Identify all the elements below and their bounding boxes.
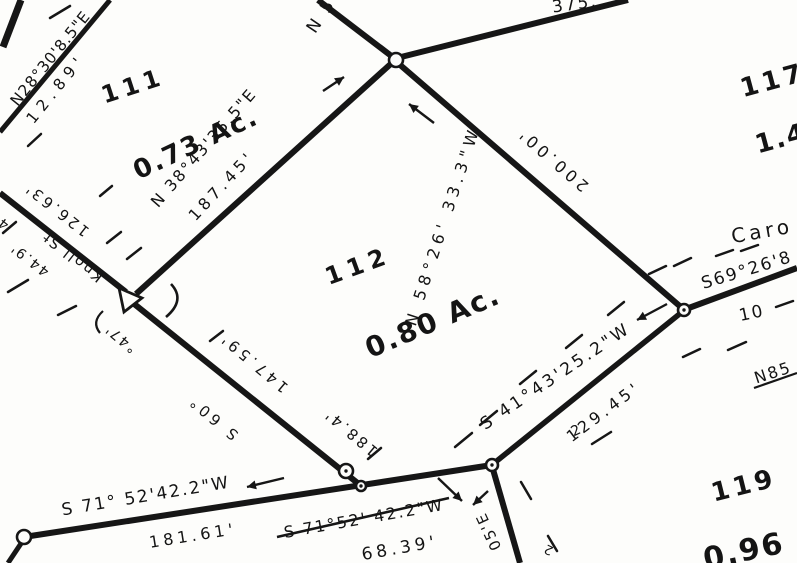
- curve-tick-right: [166, 284, 177, 317]
- tie-dash: [127, 248, 141, 259]
- corner-node-dot: [344, 469, 347, 472]
- corner-node: [389, 53, 403, 67]
- tie-dash: [608, 302, 624, 315]
- tie-dash: [521, 482, 531, 499]
- tie-dash: [107, 232, 121, 243]
- tie-dash: [100, 186, 112, 196]
- curve-tick-left: [96, 311, 103, 333]
- corner-node: [17, 530, 31, 544]
- tie-dash: [728, 342, 746, 350]
- tie-dash: [455, 433, 472, 447]
- tie-dash: [58, 306, 76, 315]
- tie-dash: [592, 432, 611, 444]
- tie-dash: [716, 250, 733, 256]
- arrow-s71-sw-head: [247, 481, 257, 490]
- tie-dash: [28, 134, 41, 146]
- tie-dash: [649, 266, 666, 274]
- tie-dash: [683, 349, 700, 357]
- lotline-corner-stub: [3, 0, 21, 47]
- tie-dash: [566, 335, 582, 348]
- tie-dash: [8, 280, 28, 292]
- lotline-200: [399, 64, 682, 308]
- corner-node-dot: [490, 463, 493, 466]
- tie-dash: [776, 301, 793, 307]
- corner-node-dot: [359, 484, 362, 487]
- corner-node-dot: [682, 308, 685, 311]
- lotline-147: [133, 303, 360, 485]
- tie-dash: [50, 6, 70, 18]
- plat-map: N28°30'8.5"E12.89'1110.73 Ac.N 38°43'35.…: [0, 0, 797, 563]
- tie-dash: [674, 258, 691, 266]
